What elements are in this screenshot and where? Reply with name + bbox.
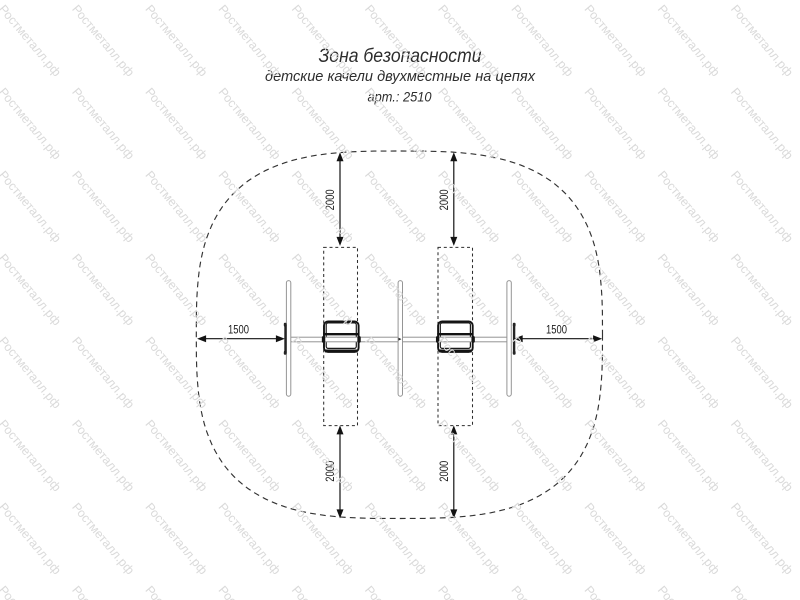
svg-text:2000: 2000 xyxy=(439,461,451,482)
svg-text:1500: 1500 xyxy=(546,325,567,337)
svg-text:1500: 1500 xyxy=(228,325,249,337)
